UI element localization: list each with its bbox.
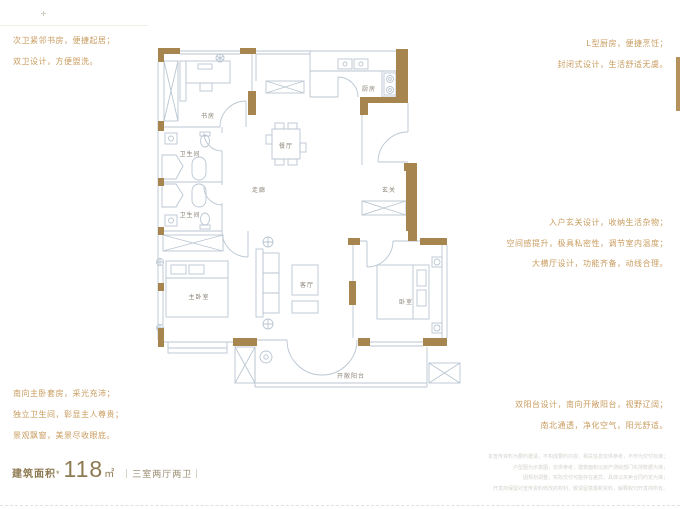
bedroom-bed-icon (377, 257, 442, 333)
registration-cross-icon (41, 11, 46, 16)
disclaimer-line: 户型图为示意图，仅供参考，建筑面积以房产测绘部门实测数据为准； (488, 463, 668, 474)
interior-walls (158, 51, 338, 231)
floorplan-brochure-page: 次卫紧邻书房，便捷起居； 双卫设计，方便盥洗。 L型厨房，便捷烹饪； 封闭式设计… (0, 0, 680, 509)
note-line: L型厨房，便捷烹饪； (558, 33, 669, 54)
master-bed-icon (163, 235, 228, 317)
note-bottom-right: 双阳台设计，南向开敞阳台，视野辽阔； 南北通透，净化空气，阳光舒适。 (515, 394, 668, 436)
note-line: 南向主卧套房，采光充沛； (13, 383, 124, 404)
room-label-living: 客厅 (300, 281, 314, 289)
note-top-right: L型厨房，便捷烹饪； 封闭式设计，生活舒适无虞。 (558, 33, 669, 75)
note-line: 大横厅设计，功能齐备，动线合理。 (507, 254, 669, 275)
note-bottom-left: 南向主卧套房，采光充沛； 独立卫生间，彰显主人尊贵； 景观飘窗，美景尽收眼底。 (13, 383, 124, 446)
note-line: 入户玄关设计，收纳生活杂物； (507, 213, 669, 234)
note-line: 双卫设计，方便盥洗。 (13, 51, 115, 72)
room-label-balcony: 开敞阳台 (337, 372, 365, 380)
note-line: 景观飘窗，美景尽收眼底。 (13, 425, 124, 446)
kitchen-fixtures-icon (310, 59, 396, 97)
layout-tag: ｜三室两厅两卫｜ (122, 467, 202, 480)
disclaimer-line: 因规划调整，实际交付可能存在差异，具体以买卖合同约定为准； (488, 473, 668, 484)
disclaimer-line: 开发商保留对宣传资料修改的权利，敬请留意最新资料，解释权归开发商所有。 (488, 484, 668, 495)
disclaimer-block: 本宣传资料为要约邀请，不构成要约内容，相关信息仅供参考，不作为交付标准； 户型图… (488, 452, 668, 494)
room-label-foyer: 玄关 (382, 186, 396, 194)
room-label-bath-upper: 卫生间 (179, 150, 200, 158)
room-label-kitchen: 厨房 (362, 85, 376, 93)
bottom-dashed-line (0, 505, 680, 506)
area-value: 118 (64, 456, 104, 483)
room-label-master: 主卧室 (188, 293, 209, 301)
note-line: 封闭式设计，生活舒适无虞。 (558, 54, 669, 75)
room-label-bedroom: 卧室 (399, 298, 413, 306)
divider-line (0, 25, 148, 26)
washer-icon (260, 351, 272, 363)
disclaimer-line: 本宣传资料为要约邀请，不构成要约内容，相关信息仅供参考，不作为交付标准； (488, 452, 668, 463)
note-mid-right: 入户玄关设计，收纳生活杂物； 空间感提升，极具私密性，调节室内温度； 大横厅设计… (507, 213, 669, 275)
area-title: 建筑面积* 118 ㎡ ｜三室两厅两卫｜ (12, 456, 202, 483)
note-line: 次卫紧邻书房，便捷起居； (13, 30, 115, 51)
gold-accent-bar (676, 57, 680, 111)
door-arcs (204, 77, 408, 375)
area-unit: ㎡ (104, 465, 114, 480)
note-top-left: 次卫紧邻书房，便捷起居； 双卫设计，方便盥洗。 (13, 30, 115, 72)
note-line: 独立卫生间，彰显主人尊贵； (13, 404, 124, 425)
area-footnote-star: * (56, 469, 60, 479)
note-line: 南北通透，净化空气，阳光舒适。 (515, 415, 668, 436)
room-label-study: 书房 (201, 112, 215, 120)
area-label: 建筑面积 (12, 465, 56, 480)
room-label-bath-lower: 卫生间 (179, 211, 200, 219)
room-label-corridor: 走廊 (252, 186, 266, 194)
room-label-dining: 餐厅 (279, 142, 293, 150)
study-furniture-icon (180, 54, 230, 101)
floor-plan: 书房 卫生间 卫生间 餐厅 厨房 走廊 玄关 主卧室 客厅 卧室 开敞阳台 (140, 35, 480, 400)
note-line: 空间感提升，极具私密性，调节室内温度； (507, 234, 669, 255)
note-line: 双阳台设计，南向开敞阳台，视野辽阔； (515, 394, 668, 415)
